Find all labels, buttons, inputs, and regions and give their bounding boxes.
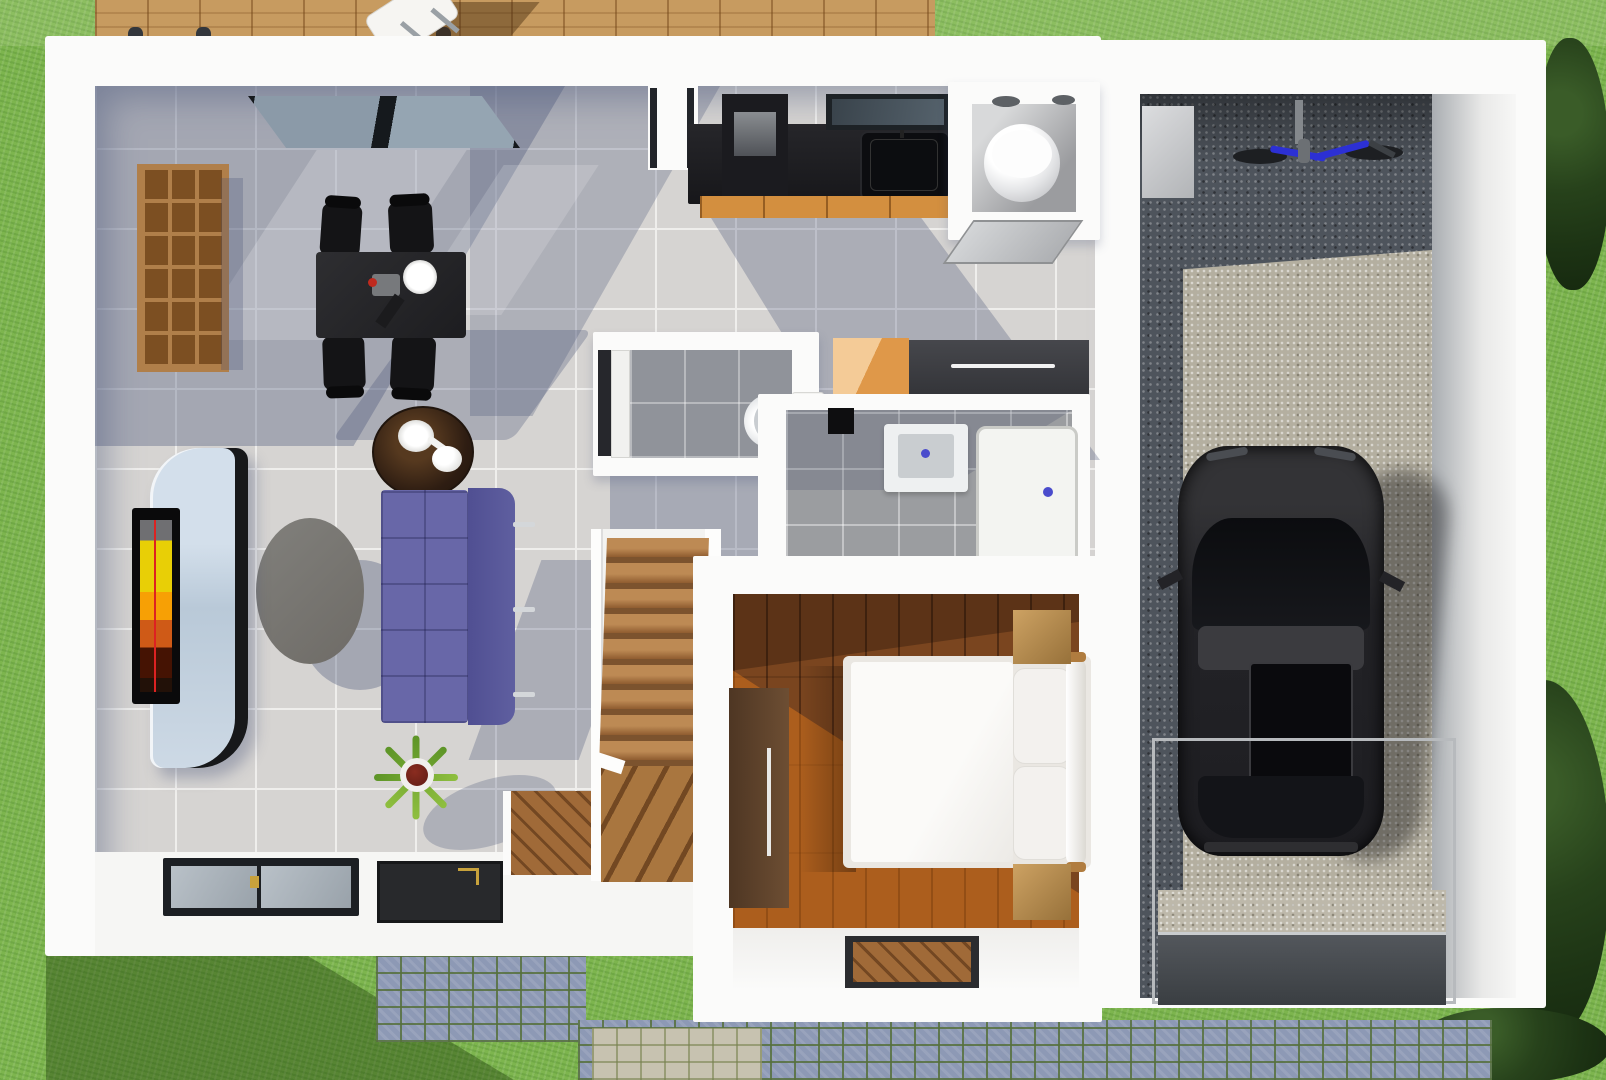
- sofa-leg-3: [513, 692, 535, 697]
- nightstand-top: [1013, 610, 1071, 664]
- bedroom-wardrobe: [729, 688, 789, 908]
- bed-headboard-roll: [1066, 658, 1086, 866]
- sofa-leg-1: [513, 522, 535, 527]
- panel-corner-mark: [458, 868, 479, 885]
- entry-door-frame: [503, 791, 511, 875]
- bed-duvet: [851, 662, 1013, 862]
- appliance-top: [734, 112, 776, 156]
- car-windshield: [1192, 518, 1370, 630]
- cobble-path-entry: [376, 954, 586, 1042]
- nightstand-bottom: [1013, 864, 1071, 920]
- sofa-seat: [381, 490, 468, 723]
- wall-niche: [828, 408, 854, 434]
- shower-drain: [1043, 487, 1053, 497]
- garage-storage-block: [1142, 106, 1194, 198]
- teapot: [432, 446, 462, 472]
- wardrobe-handle-strip: [767, 748, 771, 856]
- dinner-plate: [403, 260, 437, 294]
- sliding-window-top: [248, 96, 520, 148]
- floor-window-pane-2: [261, 866, 351, 908]
- garage-rear-wall-strip: [1158, 890, 1446, 936]
- toilet-lid: [992, 130, 1052, 178]
- dark-floor-panel: [377, 861, 503, 923]
- bicycle-seat: [1298, 139, 1310, 163]
- cobble-path-sunlit: [592, 1028, 762, 1080]
- tree-top-right: [1536, 38, 1606, 290]
- chair-headrest: [325, 195, 362, 209]
- sink-basin: [870, 139, 938, 191]
- tv-screen: [140, 520, 172, 692]
- chair-headrest: [326, 385, 364, 398]
- floor-window-handle: [250, 876, 259, 888]
- stair-tread: [600, 715, 703, 740]
- ceiling-vent-1: [992, 96, 1020, 107]
- garage-entry-ramp: [1158, 932, 1446, 1005]
- entry-door-wood: [511, 791, 599, 875]
- stair-winders: [601, 766, 707, 882]
- chair-headrest: [389, 193, 430, 207]
- wardrobe-handle: [951, 364, 1055, 368]
- bookshelf-shadow: [221, 178, 243, 370]
- potted-plant: [368, 732, 464, 824]
- sofa-leg-2: [513, 607, 535, 612]
- plant-pot: [406, 764, 428, 786]
- deck-door-leaf-1: [650, 88, 657, 168]
- stair-tread: [602, 665, 705, 690]
- kitchen-cabinets: [700, 196, 954, 218]
- dining-chair-4: [390, 335, 437, 393]
- floor-plan-render: [0, 0, 1606, 1080]
- centerpiece-flower: [368, 278, 377, 287]
- bookshelf: [137, 164, 229, 372]
- washbasin-drain: [921, 449, 930, 458]
- wc-door-gap: [598, 350, 611, 456]
- stair-tread: [604, 589, 707, 614]
- stair-tread: [601, 690, 704, 715]
- dining-chair-2: [388, 201, 435, 255]
- oval-coffee-table: [256, 518, 364, 664]
- bicycle-stand: [1295, 100, 1303, 144]
- dining-chair-3: [322, 335, 366, 390]
- kitchen-window-glass: [832, 99, 944, 125]
- tv-screen-line: [154, 520, 156, 692]
- bed-pillow-1: [1013, 668, 1071, 764]
- dining-chair-1: [319, 203, 363, 258]
- sofa-backrest: [468, 488, 515, 725]
- ceiling-vent-2: [1052, 95, 1075, 105]
- doormat-wood: [853, 942, 971, 982]
- bed-pillow-2: [1013, 766, 1071, 860]
- floor-window-pane-1: [171, 866, 257, 908]
- stair-tread: [603, 614, 706, 639]
- chair-headrest: [391, 387, 432, 401]
- stair-tread: [603, 639, 706, 664]
- wc-door-panel: [611, 350, 630, 458]
